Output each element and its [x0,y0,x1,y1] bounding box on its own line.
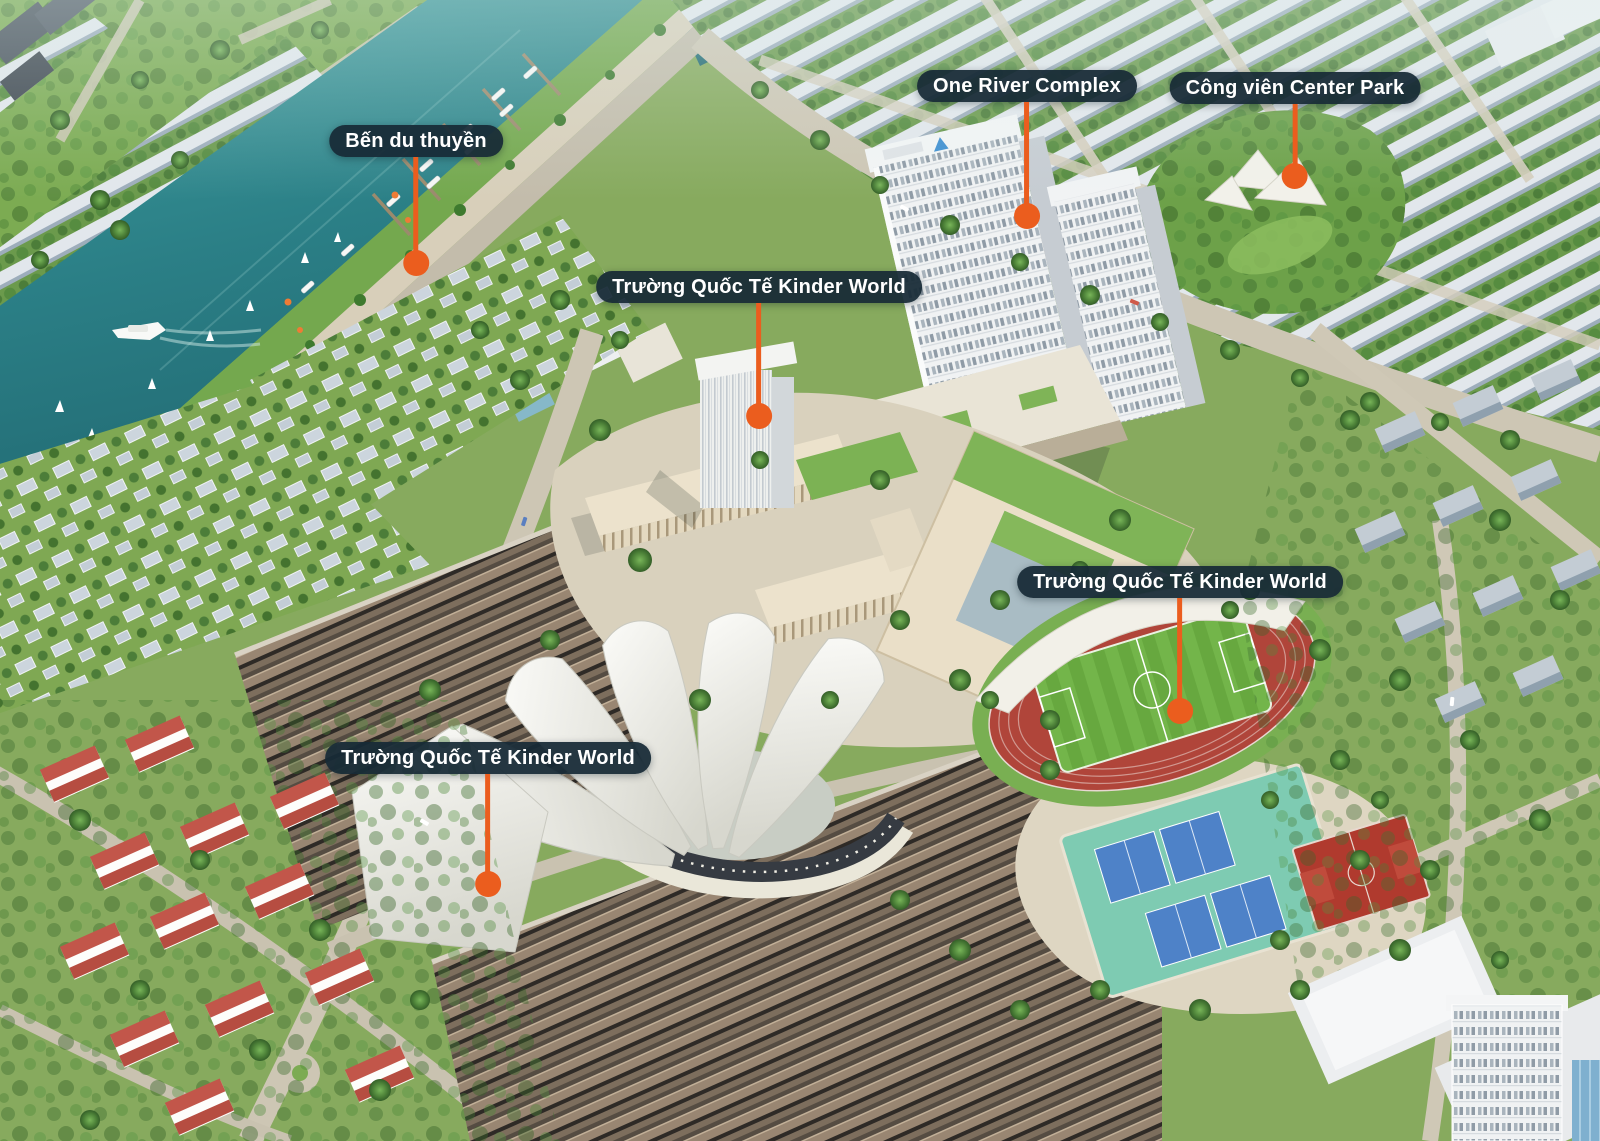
scene-illustration [0,0,1600,1141]
aerial-masterplan-render: Bến du thuyền One River Complex Công viê… [0,0,1600,1141]
haze-overlay [0,0,1600,200]
